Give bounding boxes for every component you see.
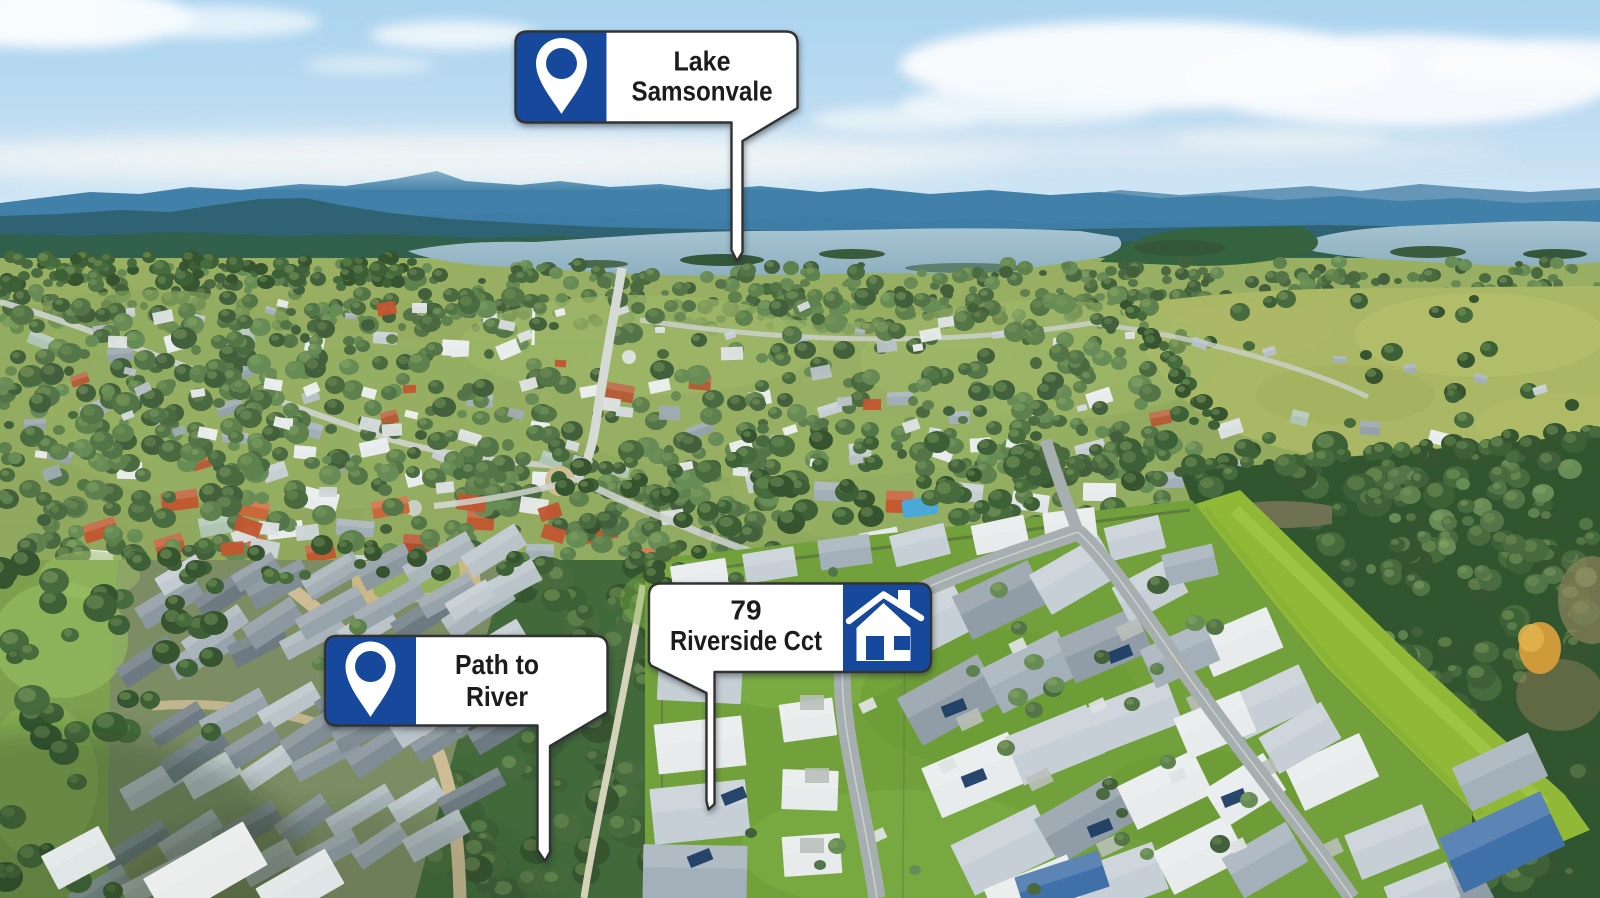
svg-text:River: River [466, 681, 528, 712]
svg-text:Lake: Lake [674, 46, 731, 77]
svg-text:Path to: Path to [455, 649, 539, 680]
svg-text:Samsonvale: Samsonvale [632, 76, 773, 107]
svg-text:79: 79 [730, 595, 761, 626]
svg-text:Riverside Cct: Riverside Cct [670, 625, 822, 656]
